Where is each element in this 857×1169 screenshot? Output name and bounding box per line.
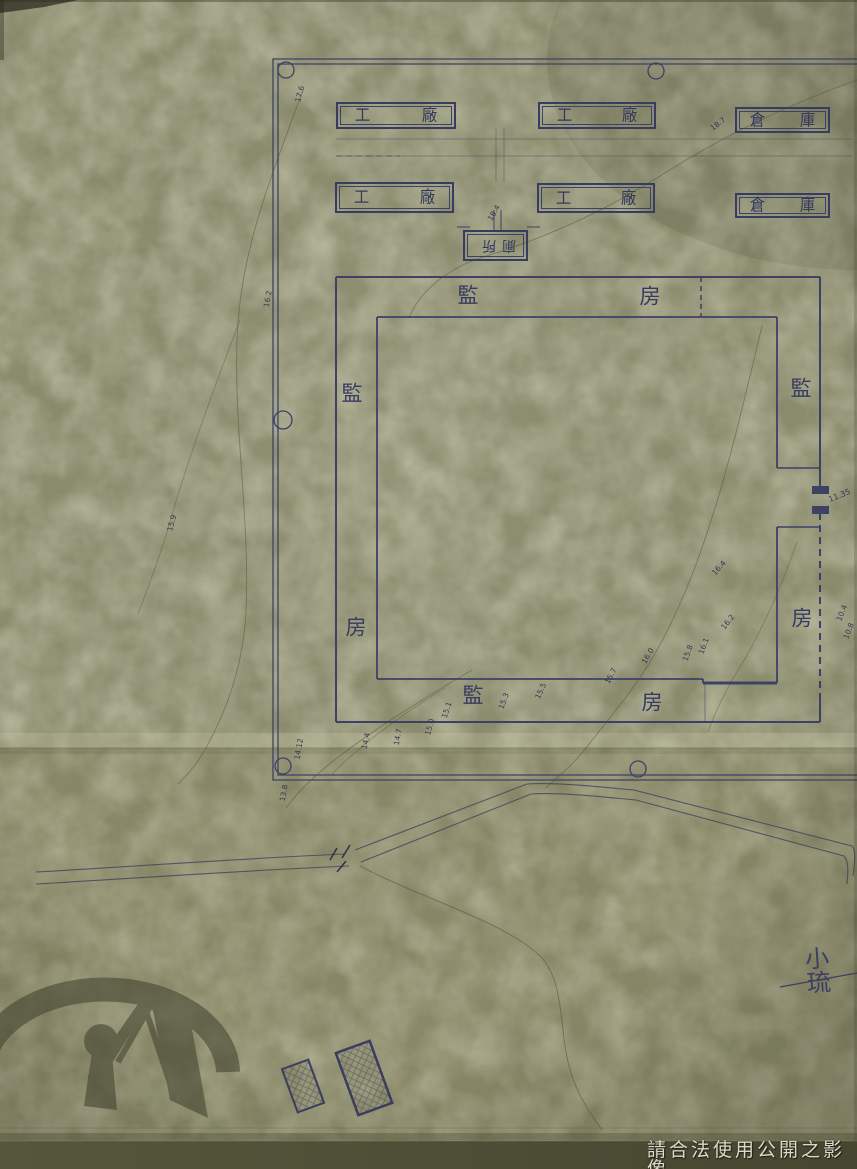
building-label: 庫 xyxy=(800,112,815,128)
gate-post xyxy=(812,486,829,494)
building-label: 廠 xyxy=(422,107,437,123)
toilet-building: 廁所 xyxy=(463,230,528,261)
cell-block-label-left: 房 xyxy=(346,618,367,639)
building-label: 工 xyxy=(557,107,572,123)
cell-block-label-right: 房 xyxy=(792,609,813,630)
factory-building-3: 工廠 xyxy=(335,182,454,213)
building-label: 工 xyxy=(355,107,370,123)
warehouse-building-2: 倉庫 xyxy=(735,193,830,218)
building-label: 廠 xyxy=(420,189,435,205)
place-name-label: 小琉 xyxy=(804,944,857,995)
logo-keyhole-circle xyxy=(84,1024,118,1058)
usage-watermark-text: 請合法使用公開之影像 xyxy=(647,1141,857,1169)
warehouse-building-1: 倉庫 xyxy=(735,107,830,133)
building-label: 庫 xyxy=(800,197,815,213)
building-label: 廠 xyxy=(622,107,637,123)
building-label: 工 xyxy=(556,190,571,206)
building-label: 工 xyxy=(354,189,369,205)
scanned-site-plan-page: 工廠 工廠 倉庫 工廠 工廠 倉庫 廁所 監 房 監 房 監 房 監 房 11.… xyxy=(0,0,857,1169)
factory-building-4: 工廠 xyxy=(537,183,655,213)
factory-building-2: 工廠 xyxy=(538,102,656,129)
gate-post xyxy=(812,506,829,514)
factory-building-1: 工廠 xyxy=(336,102,456,129)
building-label: 廠 xyxy=(621,190,636,206)
cell-block-label-top: 房 xyxy=(640,287,661,308)
site-plan-drawing xyxy=(0,0,857,1169)
building-label: 廁所 xyxy=(476,236,516,256)
cell-block-label-left: 監 xyxy=(342,384,363,405)
cell-block-label-top: 監 xyxy=(458,286,479,307)
building-label: 倉 xyxy=(750,197,765,213)
building-label: 倉 xyxy=(750,112,765,128)
cell-block-label-bottom: 房 xyxy=(642,693,663,714)
cell-block-label-right: 監 xyxy=(791,379,812,400)
cell-block-label-bottom: 監 xyxy=(463,686,484,707)
